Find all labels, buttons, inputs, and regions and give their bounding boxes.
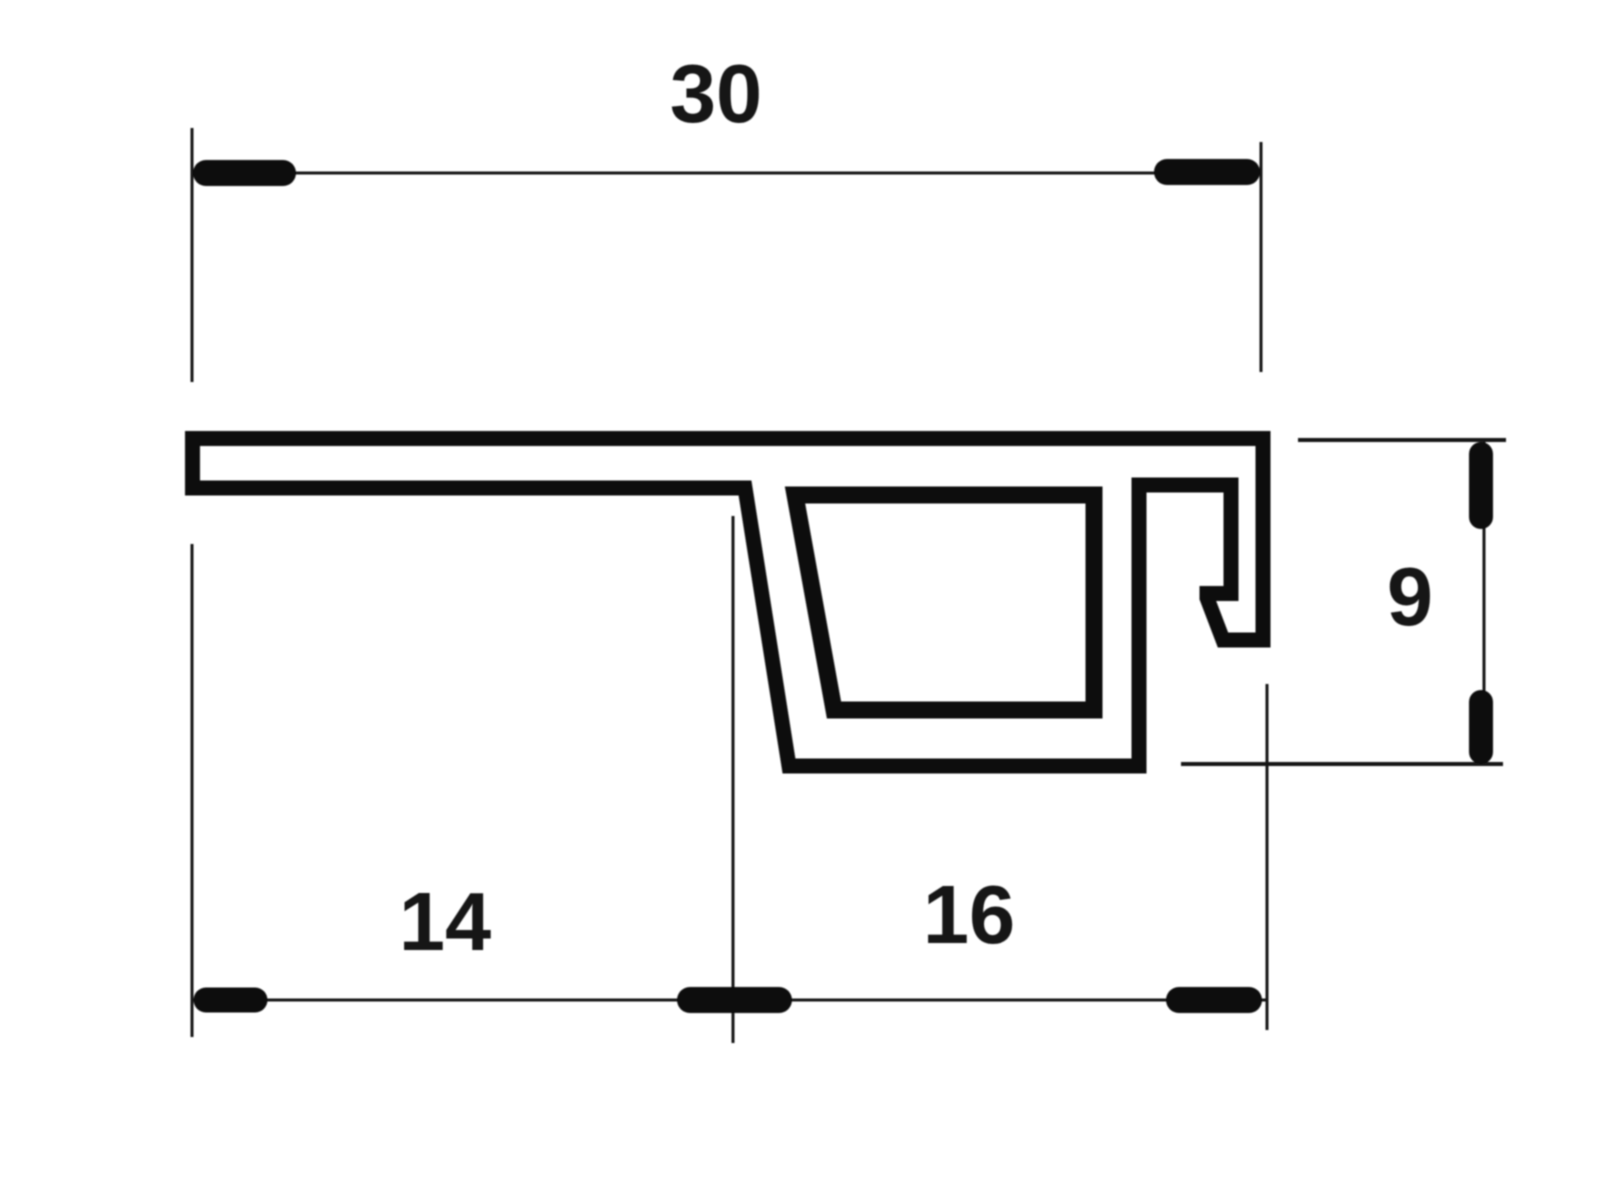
svg-text:30: 30 bbox=[670, 47, 762, 140]
svg-text:9: 9 bbox=[1387, 550, 1433, 643]
svg-text:16: 16 bbox=[923, 868, 1015, 961]
svg-text:14: 14 bbox=[399, 875, 491, 968]
